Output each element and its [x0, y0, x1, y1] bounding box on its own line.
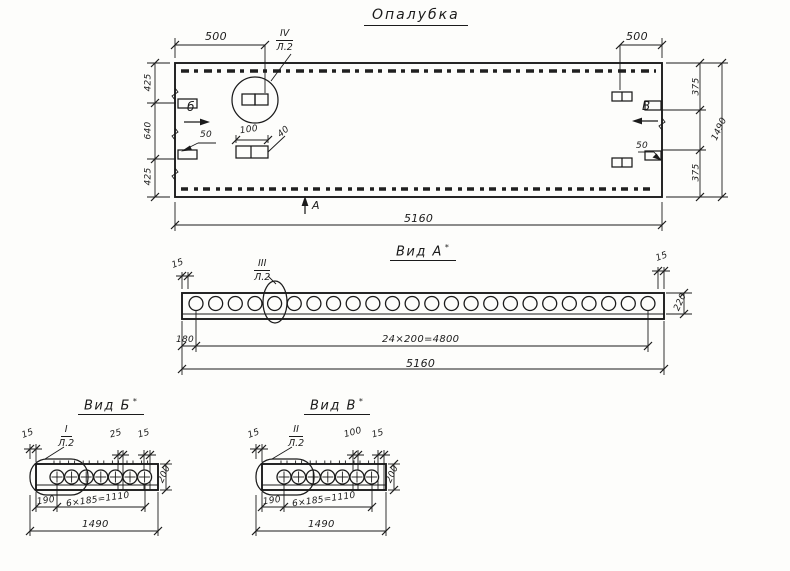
plan-marker-a: А	[312, 200, 320, 211]
view-a-title-text: Вид А	[396, 244, 443, 259]
plan-dim-640: 640	[145, 121, 154, 139]
drawing-sheet: Опалубка 500 IV Л.2 500 425 640 425 375 …	[0, 0, 790, 571]
view-v-dim-1490: 1490	[308, 520, 335, 530]
view-b-dim-1490: 1490	[82, 520, 109, 530]
view-b-title-text: Вид Б	[84, 398, 131, 413]
plan-dim-5160: 5160	[404, 213, 433, 224]
plan-dim-500-right: 500	[626, 31, 648, 42]
page-title: Опалубка	[364, 8, 468, 26]
view-a-title: Вид А*	[390, 244, 456, 261]
view-a-title-mark: *	[445, 243, 451, 252]
view-b-callout: I Л.2	[58, 424, 74, 450]
plan-clamp-detail	[236, 146, 268, 158]
view-v-title: Вид В*	[304, 398, 370, 415]
view-a-dim-180: 180	[176, 336, 194, 345]
plan-dim-50-left: 50	[200, 131, 212, 140]
view-v-arrow-icon	[632, 118, 642, 125]
callout-number: I	[61, 424, 72, 437]
plan-marker-v: В	[642, 100, 651, 112]
view-a-dim-5160: 5160	[406, 358, 435, 369]
plan-dim-425-top: 425	[145, 73, 154, 91]
callout-sheet-ref: Л.2	[254, 271, 270, 283]
view-v-callout: II Л.2	[288, 424, 304, 450]
callout-sheet-ref: Л.2	[277, 41, 293, 53]
view-v-title-mark: *	[359, 397, 365, 406]
dimension-tick-marks	[26, 41, 726, 535]
plan-marker-b: б	[187, 101, 195, 113]
view-a-dim-spacing: 24×200=4800	[382, 335, 459, 345]
callout-number: II	[289, 424, 303, 437]
plan-dim-375-top: 375	[693, 77, 702, 95]
callout-number: IV	[276, 28, 293, 41]
view-v-title-text: Вид В	[310, 398, 357, 413]
callout-sheet-ref: Л.2	[58, 437, 74, 449]
view-a-callout: III Л.2	[254, 258, 270, 284]
view-a-holes	[189, 297, 655, 311]
view-b-title: Вид Б*	[78, 398, 144, 415]
plan-detail-callout: IV Л.2	[276, 28, 293, 54]
callout-sheet-ref: Л.2	[288, 437, 304, 449]
view-b-arrow-icon	[200, 119, 210, 126]
plan-linework	[147, 38, 728, 231]
plan-dim-50-right: 50	[636, 142, 648, 151]
plan-dim-425-bottom: 425	[145, 167, 154, 185]
callout-number: III	[254, 258, 270, 271]
plan-dim-500-left: 500	[205, 31, 227, 42]
plan-dim-375-bottom: 375	[693, 163, 702, 181]
view-b-title-mark: *	[133, 397, 139, 406]
drawing-canvas	[0, 0, 790, 571]
